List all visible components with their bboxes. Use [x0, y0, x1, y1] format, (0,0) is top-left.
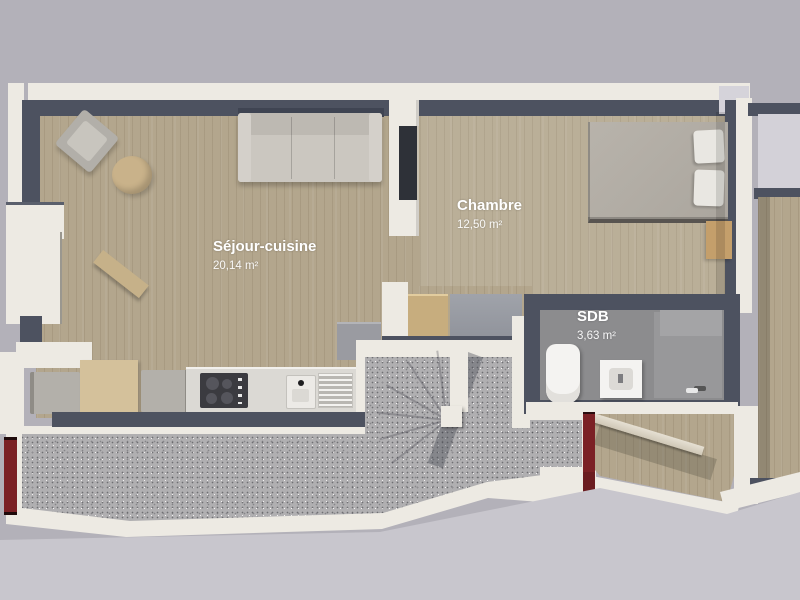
entry-door-frame-red — [583, 412, 595, 476]
sofa-seam-1 — [291, 117, 292, 179]
drying-rack — [318, 373, 353, 408]
floor-plan-canvas: Séjour-cuisine 20,14 m² Chambre 12,50 m²… — [0, 0, 800, 600]
chambre-wall-shadow — [716, 112, 725, 304]
sofa-seam-2 — [334, 117, 335, 179]
washbasin-tap — [618, 374, 623, 383]
washbasin — [600, 360, 642, 398]
burner-3 — [206, 393, 217, 404]
room-name-sejour: Séjour-cuisine — [213, 238, 316, 257]
burner-2 — [222, 379, 232, 389]
room-label-sdb: SDB 3,63 m² — [577, 308, 616, 343]
closet-wood — [408, 294, 448, 340]
sink-faucet — [298, 380, 304, 386]
sofa-armrest-left — [238, 113, 251, 182]
sofa-back-cushions — [249, 113, 371, 135]
french-window-left — [6, 232, 62, 324]
shower-faucet — [686, 388, 698, 393]
dining-table — [80, 360, 138, 415]
ottoman — [112, 156, 152, 194]
cooktop-controls — [238, 378, 242, 404]
tv-unit — [399, 126, 419, 200]
rr-floor — [758, 197, 800, 481]
building-door-red-left — [4, 437, 17, 515]
wall-left-inner-top — [22, 100, 40, 212]
wall-sejour-bottom — [52, 412, 402, 427]
shower-tray-edge — [660, 310, 722, 336]
room-area-sejour: 20,14 m² — [213, 259, 316, 273]
burner-4 — [221, 392, 233, 404]
room-name-chambre: Chambre — [457, 197, 522, 216]
cooktop — [200, 373, 248, 408]
room-label-sejour: Séjour-cuisine 20,14 m² — [213, 238, 316, 273]
sink-bowl — [292, 389, 309, 402]
armchair-cushion — [66, 120, 108, 162]
bed — [588, 122, 728, 223]
dining-chair-left — [30, 372, 80, 414]
wall-right-outer — [736, 98, 752, 313]
partition-wall-lower — [382, 282, 408, 344]
sofa-armrest-right — [369, 113, 382, 182]
toilet — [546, 344, 580, 404]
room-area-chambre: 12,50 m² — [457, 218, 522, 232]
wall-left-outer-bottom — [0, 352, 24, 434]
rr-window-recess — [758, 114, 800, 190]
entry-door-frame-red-lower — [583, 472, 595, 492]
dining-chair-right — [141, 370, 189, 412]
room-area-sdb: 3,63 m² — [577, 329, 616, 343]
stair-wall-stub — [450, 352, 468, 412]
sofa — [238, 113, 382, 182]
room-name-sdb: SDB — [577, 308, 616, 327]
rr-floor-shadow — [758, 197, 770, 481]
room-label-chambre: Chambre 12,50 m² — [457, 197, 522, 232]
burner-1 — [206, 377, 219, 390]
kitchen-sink — [286, 375, 316, 409]
stair-newel-post — [441, 406, 462, 427]
